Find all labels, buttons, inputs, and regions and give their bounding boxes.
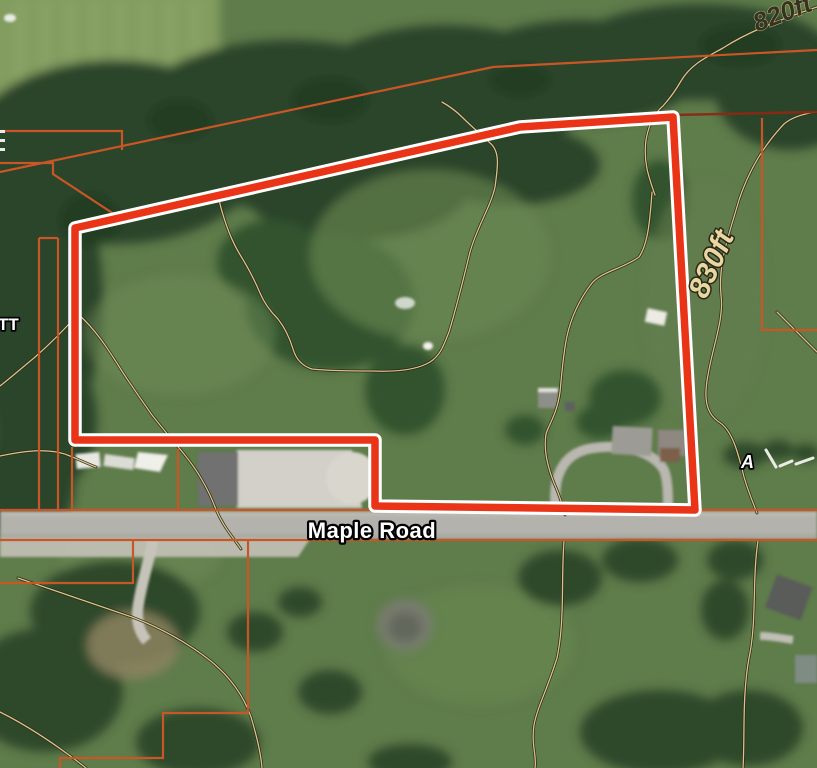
- edge-label-right: A: [740, 452, 754, 472]
- road-label: Maple Road: [308, 518, 436, 543]
- aerial-map: Maple Road 820ft 830ft TT A: [0, 0, 817, 768]
- edge-label-left: TT: [0, 315, 19, 334]
- house-roof: [611, 426, 652, 456]
- field-object: [395, 297, 415, 309]
- shed-gray: [538, 392, 558, 408]
- map-canvas[interactable]: Maple Road 820ft 830ft TT A: [0, 0, 817, 768]
- building-large: [198, 452, 238, 506]
